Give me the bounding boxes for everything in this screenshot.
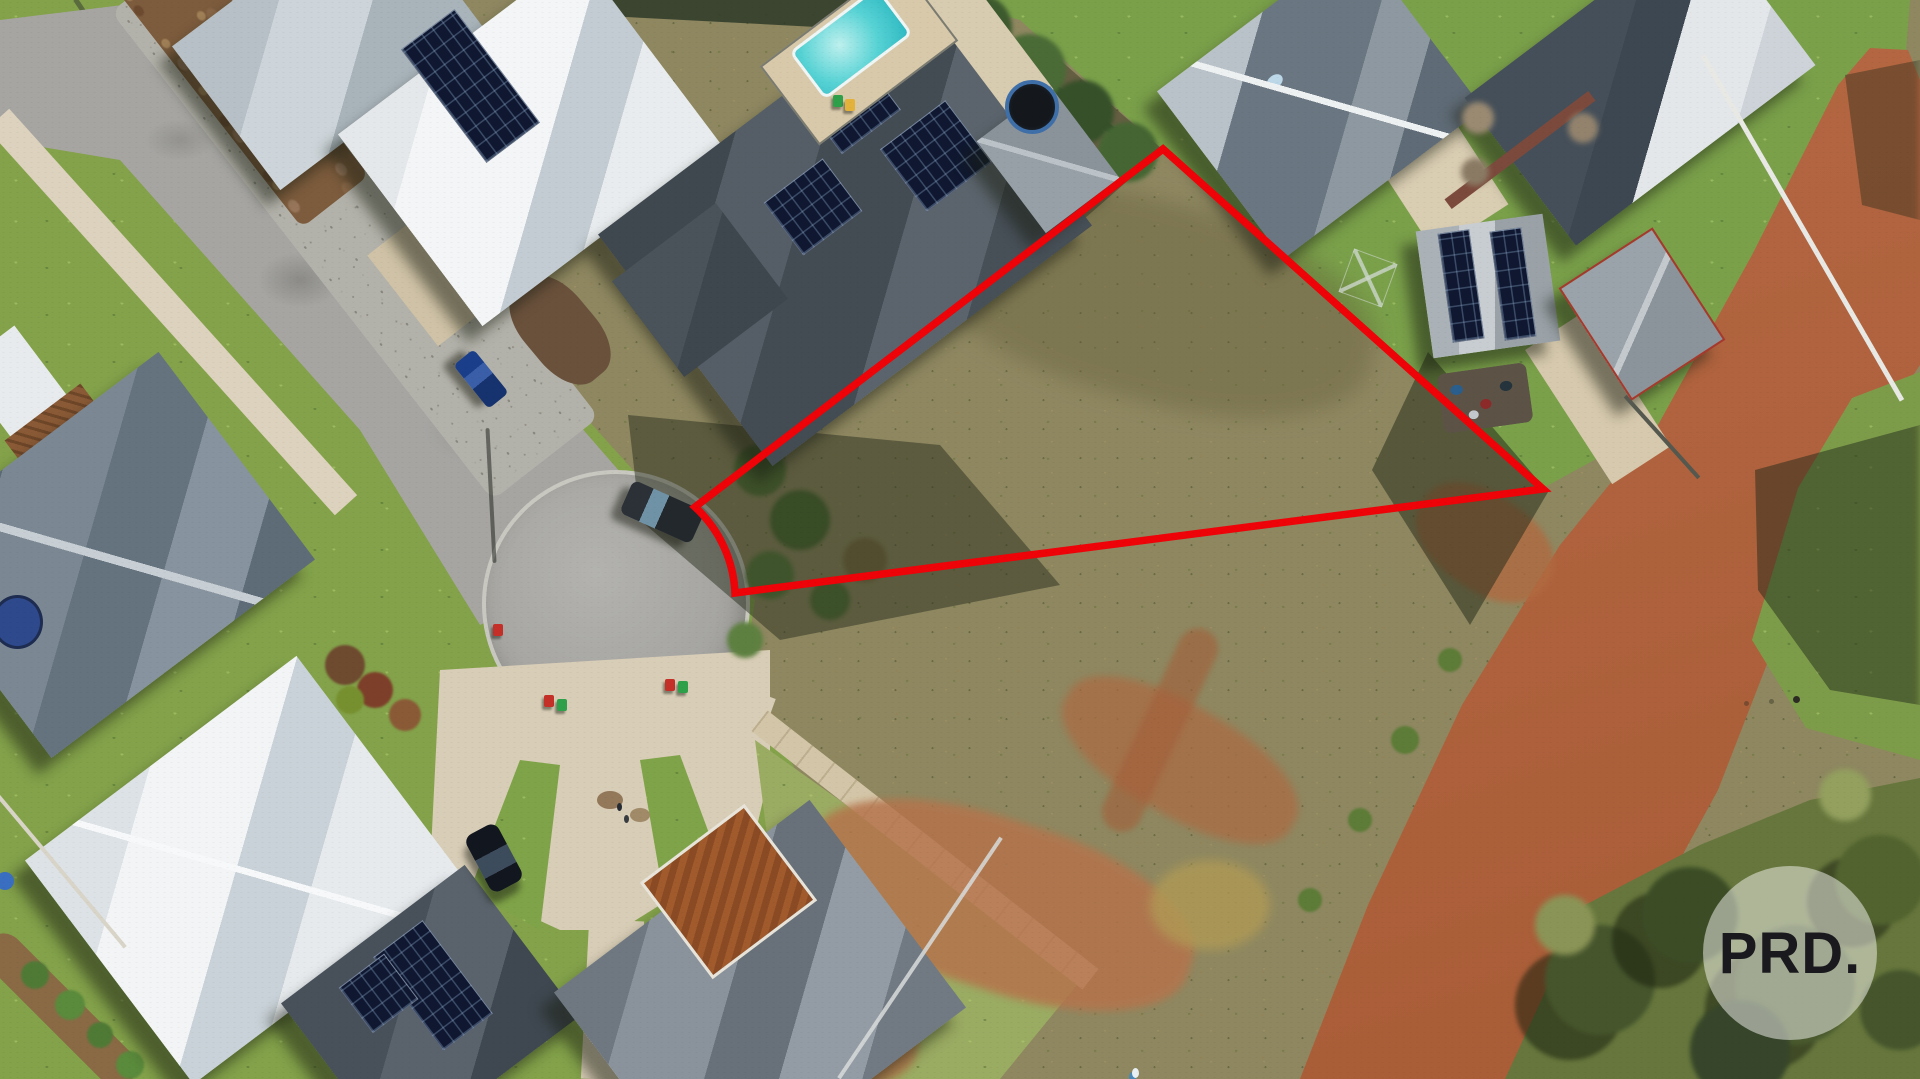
prd-logo-text: PRD. [1719, 920, 1862, 987]
prd-logo-watermark: PRD. [1703, 866, 1877, 1040]
property-boundary-line [695, 149, 1543, 593]
aerial-photo: PRD. [0, 0, 1920, 1079]
property-boundary-overlay [0, 0, 1920, 1079]
